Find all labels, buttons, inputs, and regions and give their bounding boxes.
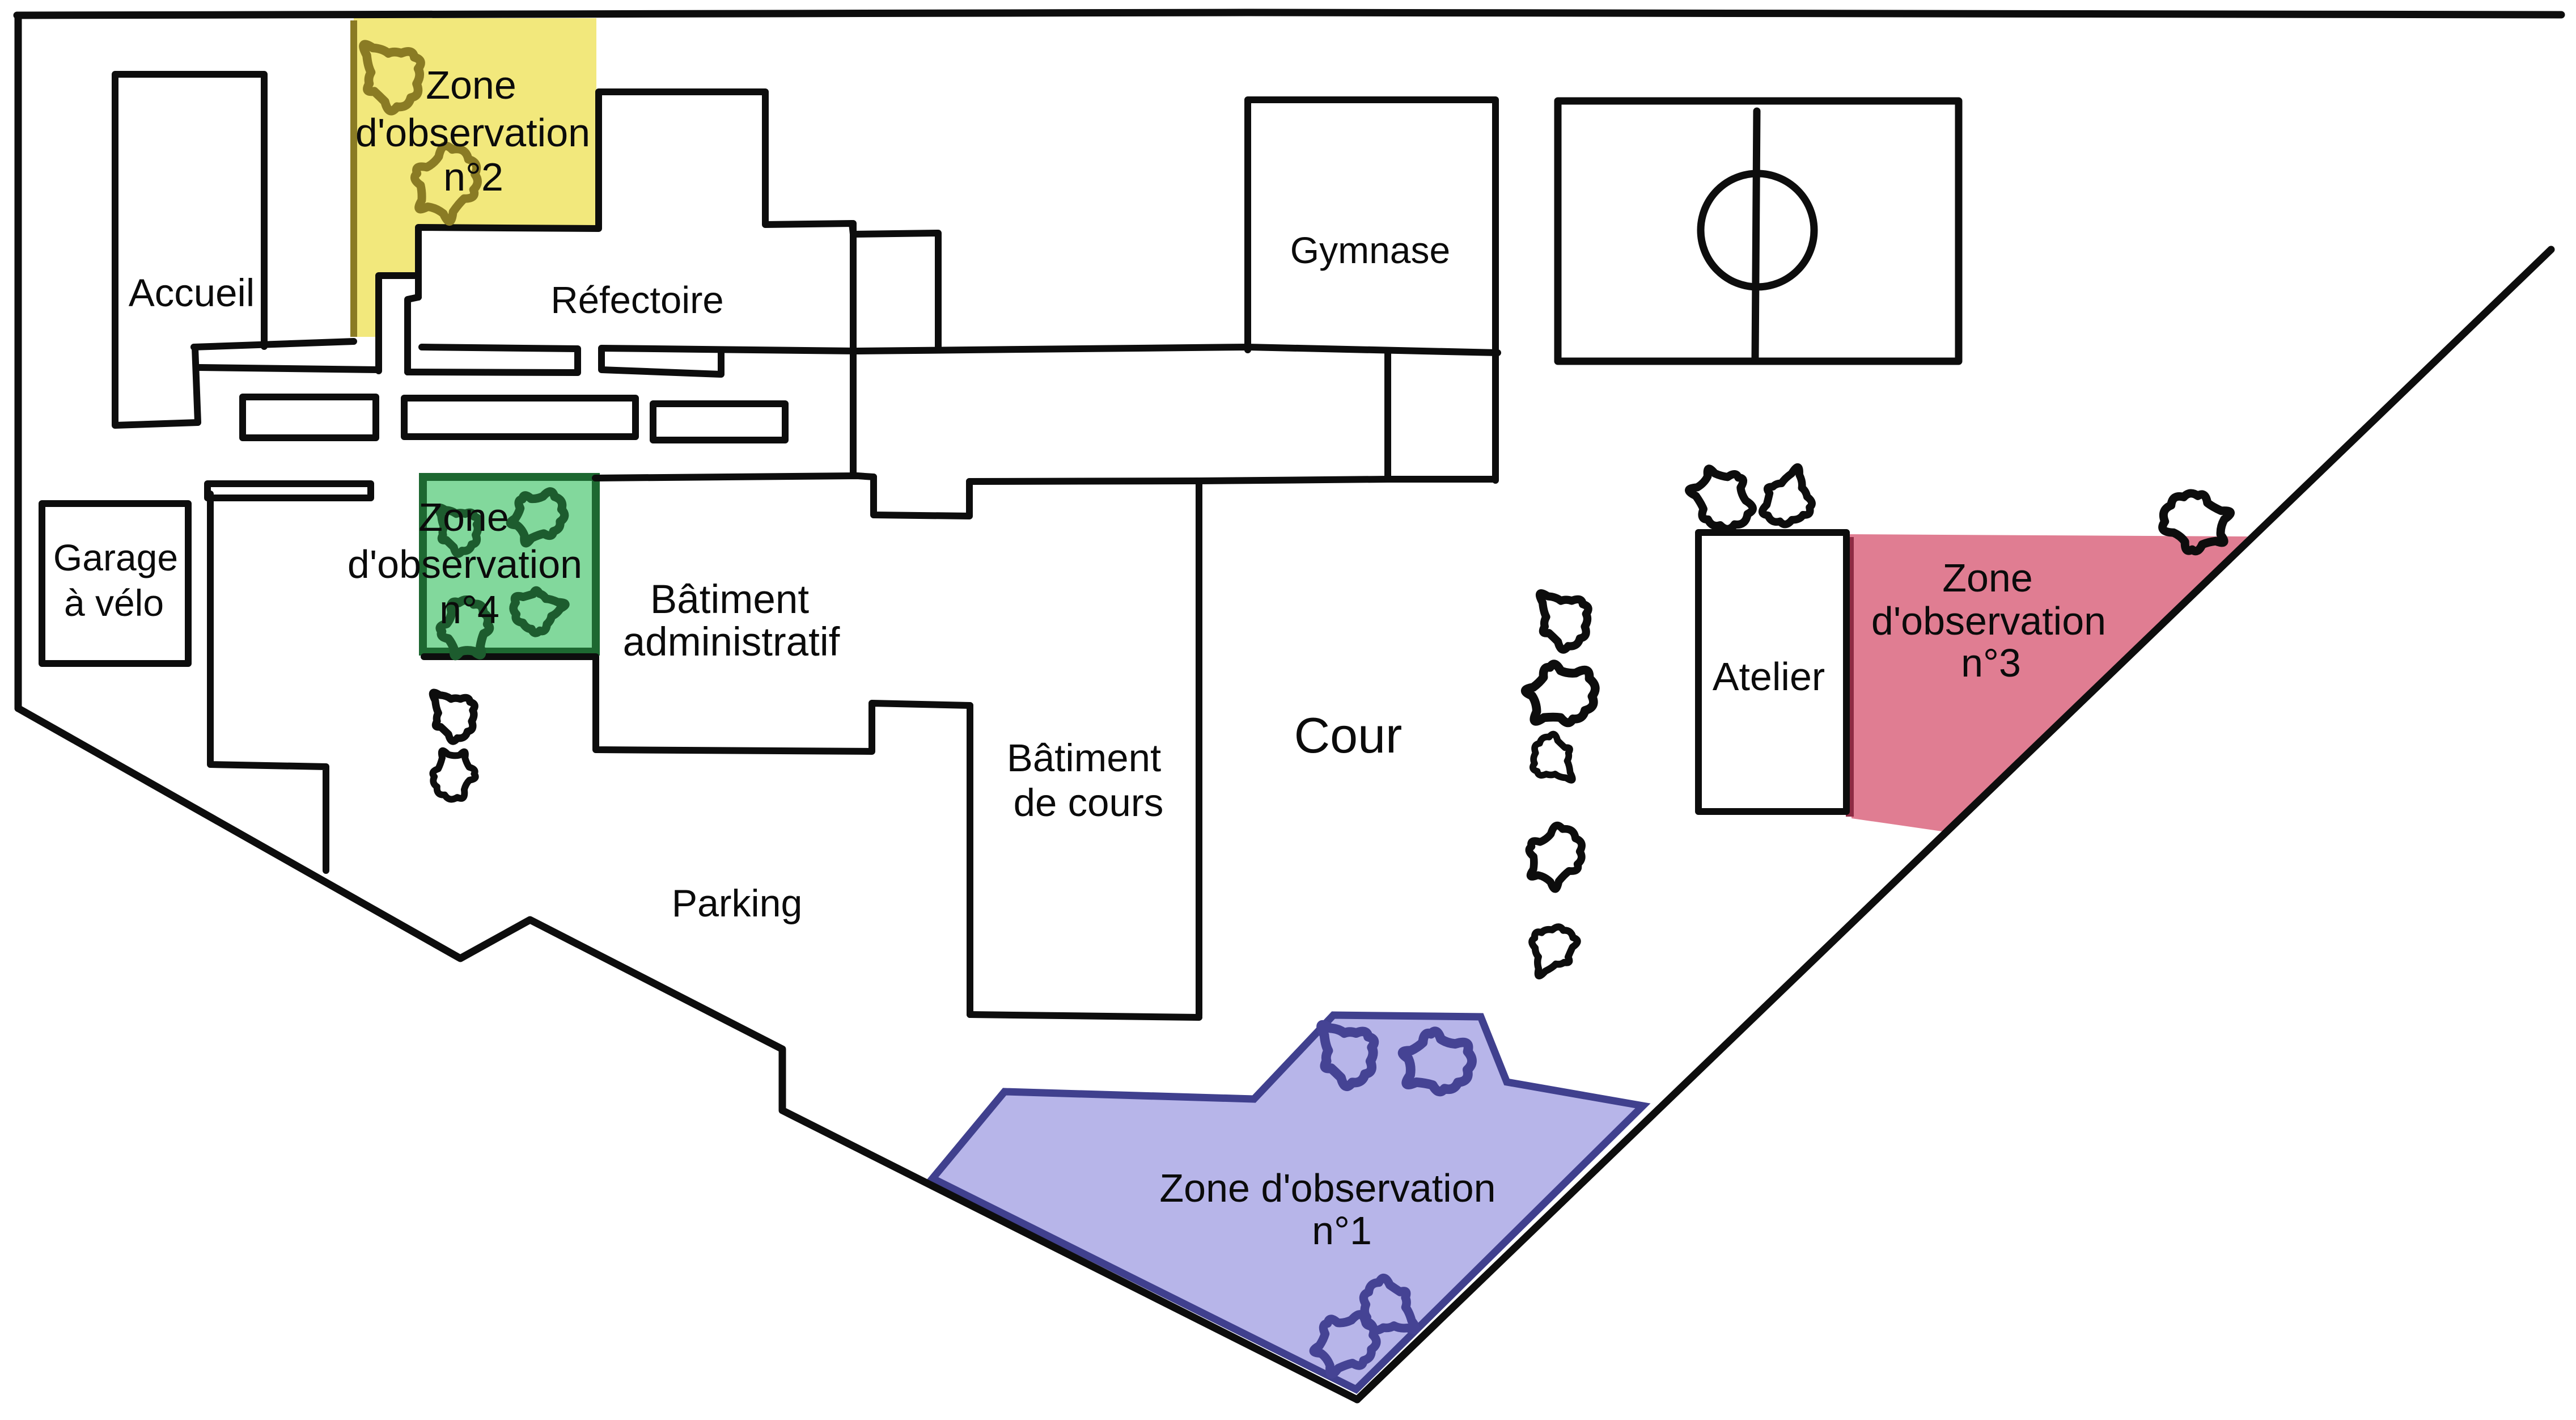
svg-text:administratif: administratif	[623, 620, 840, 665]
svg-text:n°3: n°3	[1961, 641, 2021, 685]
svg-text:Zone d'observation: Zone d'observation	[1159, 1166, 1495, 1210]
svg-text:Gymnase: Gymnase	[1290, 229, 1450, 271]
svg-text:Parking: Parking	[672, 882, 803, 925]
svg-text:à vélo: à vélo	[64, 582, 164, 624]
svg-text:Zone: Zone	[1942, 556, 2033, 600]
svg-text:n°2: n°2	[443, 155, 503, 199]
svg-text:Zone: Zone	[418, 495, 509, 539]
svg-text:Accueil: Accueil	[129, 271, 255, 315]
svg-text:Atelier: Atelier	[1713, 654, 1825, 699]
svg-text:Bâtiment: Bâtiment	[650, 577, 809, 622]
svg-text:d'observation: d'observation	[355, 111, 590, 155]
svg-text:n°4: n°4	[439, 588, 499, 632]
svg-text:Cour: Cour	[1294, 707, 1403, 763]
svg-text:Garage: Garage	[53, 536, 178, 578]
svg-text:de cours: de cours	[1014, 781, 1164, 825]
svg-text:d'observation: d'observation	[1871, 599, 2106, 643]
svg-text:n°1: n°1	[1312, 1208, 1372, 1253]
svg-text:Réfectoire: Réfectoire	[550, 279, 723, 322]
svg-text:Zone: Zone	[426, 63, 516, 107]
svg-text:Bâtiment: Bâtiment	[1007, 736, 1161, 780]
svg-text:d'observation: d'observation	[348, 542, 582, 586]
